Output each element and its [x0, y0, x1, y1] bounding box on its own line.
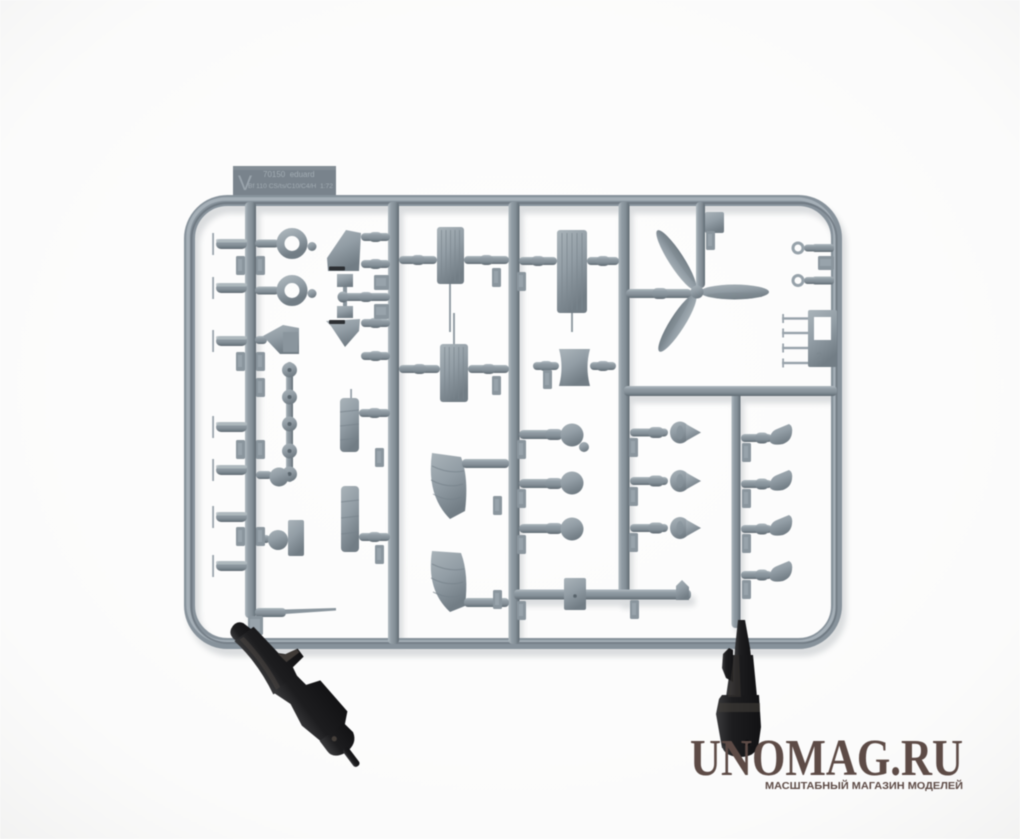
svg-text:Bf 110 CS/ts/C10/C4/H 1:72: Bf 110 CS/ts/C10/C4/H 1:72 [248, 183, 333, 190]
svg-text:2: 2 [816, 351, 822, 363]
svg-text:UNOMAG.RU: UNOMAG.RU [690, 730, 963, 787]
svg-text:МАСШТАБНЫЙ МАГАЗИН МОДЕЛЕЙ: МАСШТАБНЫЙ МАГАЗИН МОДЕЛЕЙ [765, 779, 963, 792]
svg-text:70150 eduard: 70150 eduard [263, 170, 315, 179]
